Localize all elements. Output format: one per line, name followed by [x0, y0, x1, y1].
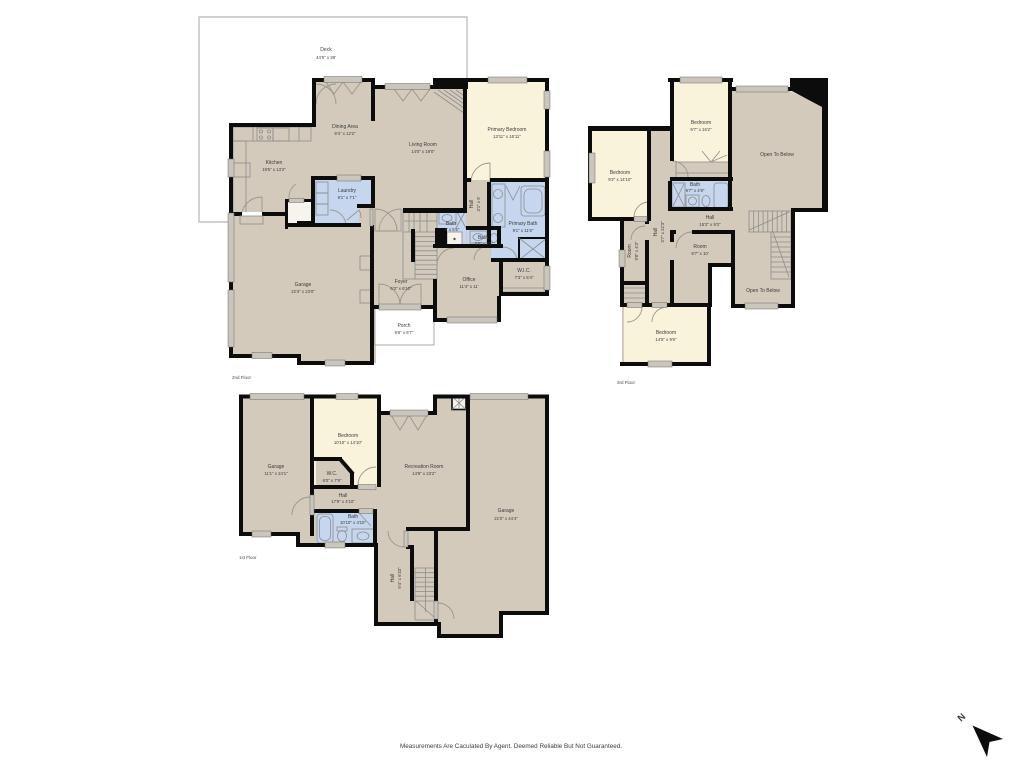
svg-text:W.I.C.: W.I.C.	[517, 268, 531, 274]
svg-text:9'1" x 11'6": 9'1" x 11'6"	[513, 228, 534, 233]
svg-text:Bedroom: Bedroom	[610, 170, 630, 176]
svg-text:Recreation Room: Recreation Room	[405, 464, 444, 470]
svg-text:10'10" x 4'10": 10'10" x 4'10"	[340, 520, 366, 525]
svg-text:Primary Bedroom: Primary Bedroom	[488, 127, 527, 133]
svg-text:Hall: Hall	[390, 574, 396, 583]
svg-text:17'9" x 4'10": 17'9" x 4'10"	[331, 499, 355, 504]
svg-text:9'2" x 14'10": 9'2" x 14'10"	[608, 177, 632, 182]
svg-text:3'1" x 9': 3'1" x 9'	[476, 196, 481, 211]
svg-text:Deck: Deck	[320, 47, 332, 53]
svg-text:Open To Below: Open To Below	[746, 288, 780, 294]
svg-text:Bedroom: Bedroom	[691, 120, 711, 126]
svg-text:2nd Floor: 2nd Floor	[232, 375, 252, 380]
svg-text:9'7" x 16'2": 9'7" x 16'2"	[690, 127, 712, 132]
svg-text:13'11" x 16'11": 13'11" x 16'11"	[493, 134, 521, 139]
svg-text:Hall: Hall	[706, 215, 715, 221]
svg-text:6'0" x 7'9": 6'0" x 7'9"	[323, 478, 342, 483]
svg-text:Room: Room	[693, 244, 706, 250]
svg-text:9'0" x 4'3": 9'0" x 4'3"	[634, 241, 639, 260]
svg-text:21'0" x 44'4": 21'0" x 44'4"	[494, 516, 518, 521]
svg-text:7'3" x 5'4": 7'3" x 5'4"	[515, 275, 534, 280]
svg-text:Bedroom: Bedroom	[338, 433, 358, 439]
svg-text:6'3" x 6'10": 6'3" x 6'10"	[390, 286, 412, 291]
svg-text:Primary Bath: Primary Bath	[509, 221, 538, 227]
svg-text:11'4" x 11': 11'4" x 11'	[459, 284, 478, 289]
svg-text:22'4" x 23'0": 22'4" x 23'0"	[291, 289, 315, 294]
svg-text:11'1" x 24'1": 11'1" x 24'1"	[264, 471, 288, 476]
svg-text:14'9" x 23'2": 14'9" x 23'2"	[412, 471, 436, 476]
svg-text:Dining Area: Dining Area	[332, 124, 358, 130]
svg-text:9'7" x 4'9": 9'7" x 4'9"	[686, 188, 705, 193]
svg-text:Office: Office	[463, 277, 476, 283]
svg-text:Kitchen: Kitchen	[266, 160, 283, 166]
svg-text:10'10" x 14'10": 10'10" x 14'10"	[334, 440, 363, 445]
svg-text:Hall: Hall	[469, 200, 475, 209]
svg-text:Garage: Garage	[268, 464, 285, 470]
svg-text:14'5" x 9'6": 14'5" x 9'6"	[655, 337, 677, 342]
svg-text:Porch: Porch	[397, 323, 410, 329]
svg-text:1st Floor: 1st Floor	[239, 555, 257, 560]
svg-text:Living Room: Living Room	[409, 142, 437, 148]
svg-text:19'5" x 13'2": 19'5" x 13'2"	[262, 167, 286, 172]
svg-text:5'5" x 3'6": 5'5" x 3'6"	[475, 241, 494, 246]
svg-text:Measurements Are Caculated By: Measurements Are Caculated By Agent. Dee…	[400, 743, 622, 750]
svg-text:9'4" x 12'2": 9'4" x 12'2"	[334, 131, 356, 136]
svg-text:3rd Floor: 3rd Floor	[617, 380, 636, 385]
svg-text:Bedroom: Bedroom	[656, 330, 676, 336]
svg-text:Open To Below: Open To Below	[760, 152, 794, 158]
svg-text:15'2" x 9'3": 15'2" x 9'3"	[699, 222, 721, 227]
svg-text:Laundry: Laundry	[338, 188, 357, 194]
svg-text:14'0" x 19'0": 14'0" x 19'0"	[411, 149, 435, 154]
svg-text:9'4" x 6'10": 9'4" x 6'10"	[397, 567, 402, 589]
svg-text:9'1" x 7'1": 9'1" x 7'1"	[338, 195, 357, 200]
svg-text:44'5" x 39': 44'5" x 39'	[316, 55, 336, 60]
svg-text:Garage: Garage	[498, 508, 515, 514]
svg-text:W.C.: W.C.	[327, 471, 338, 477]
svg-text:3'7" x 22'3": 3'7" x 22'3"	[660, 221, 665, 243]
svg-text:Hall: Hall	[653, 228, 659, 237]
svg-text:9'7" x 10': 9'7" x 10'	[691, 251, 708, 256]
svg-text:9'6" x 6'7": 9'6" x 6'7"	[395, 330, 414, 335]
svg-text:Foyer: Foyer	[395, 279, 408, 285]
svg-text:Garage: Garage	[295, 282, 312, 288]
svg-text:4' x 5'5": 4' x 5'5"	[445, 227, 460, 232]
svg-text:Room: Room	[627, 244, 633, 257]
